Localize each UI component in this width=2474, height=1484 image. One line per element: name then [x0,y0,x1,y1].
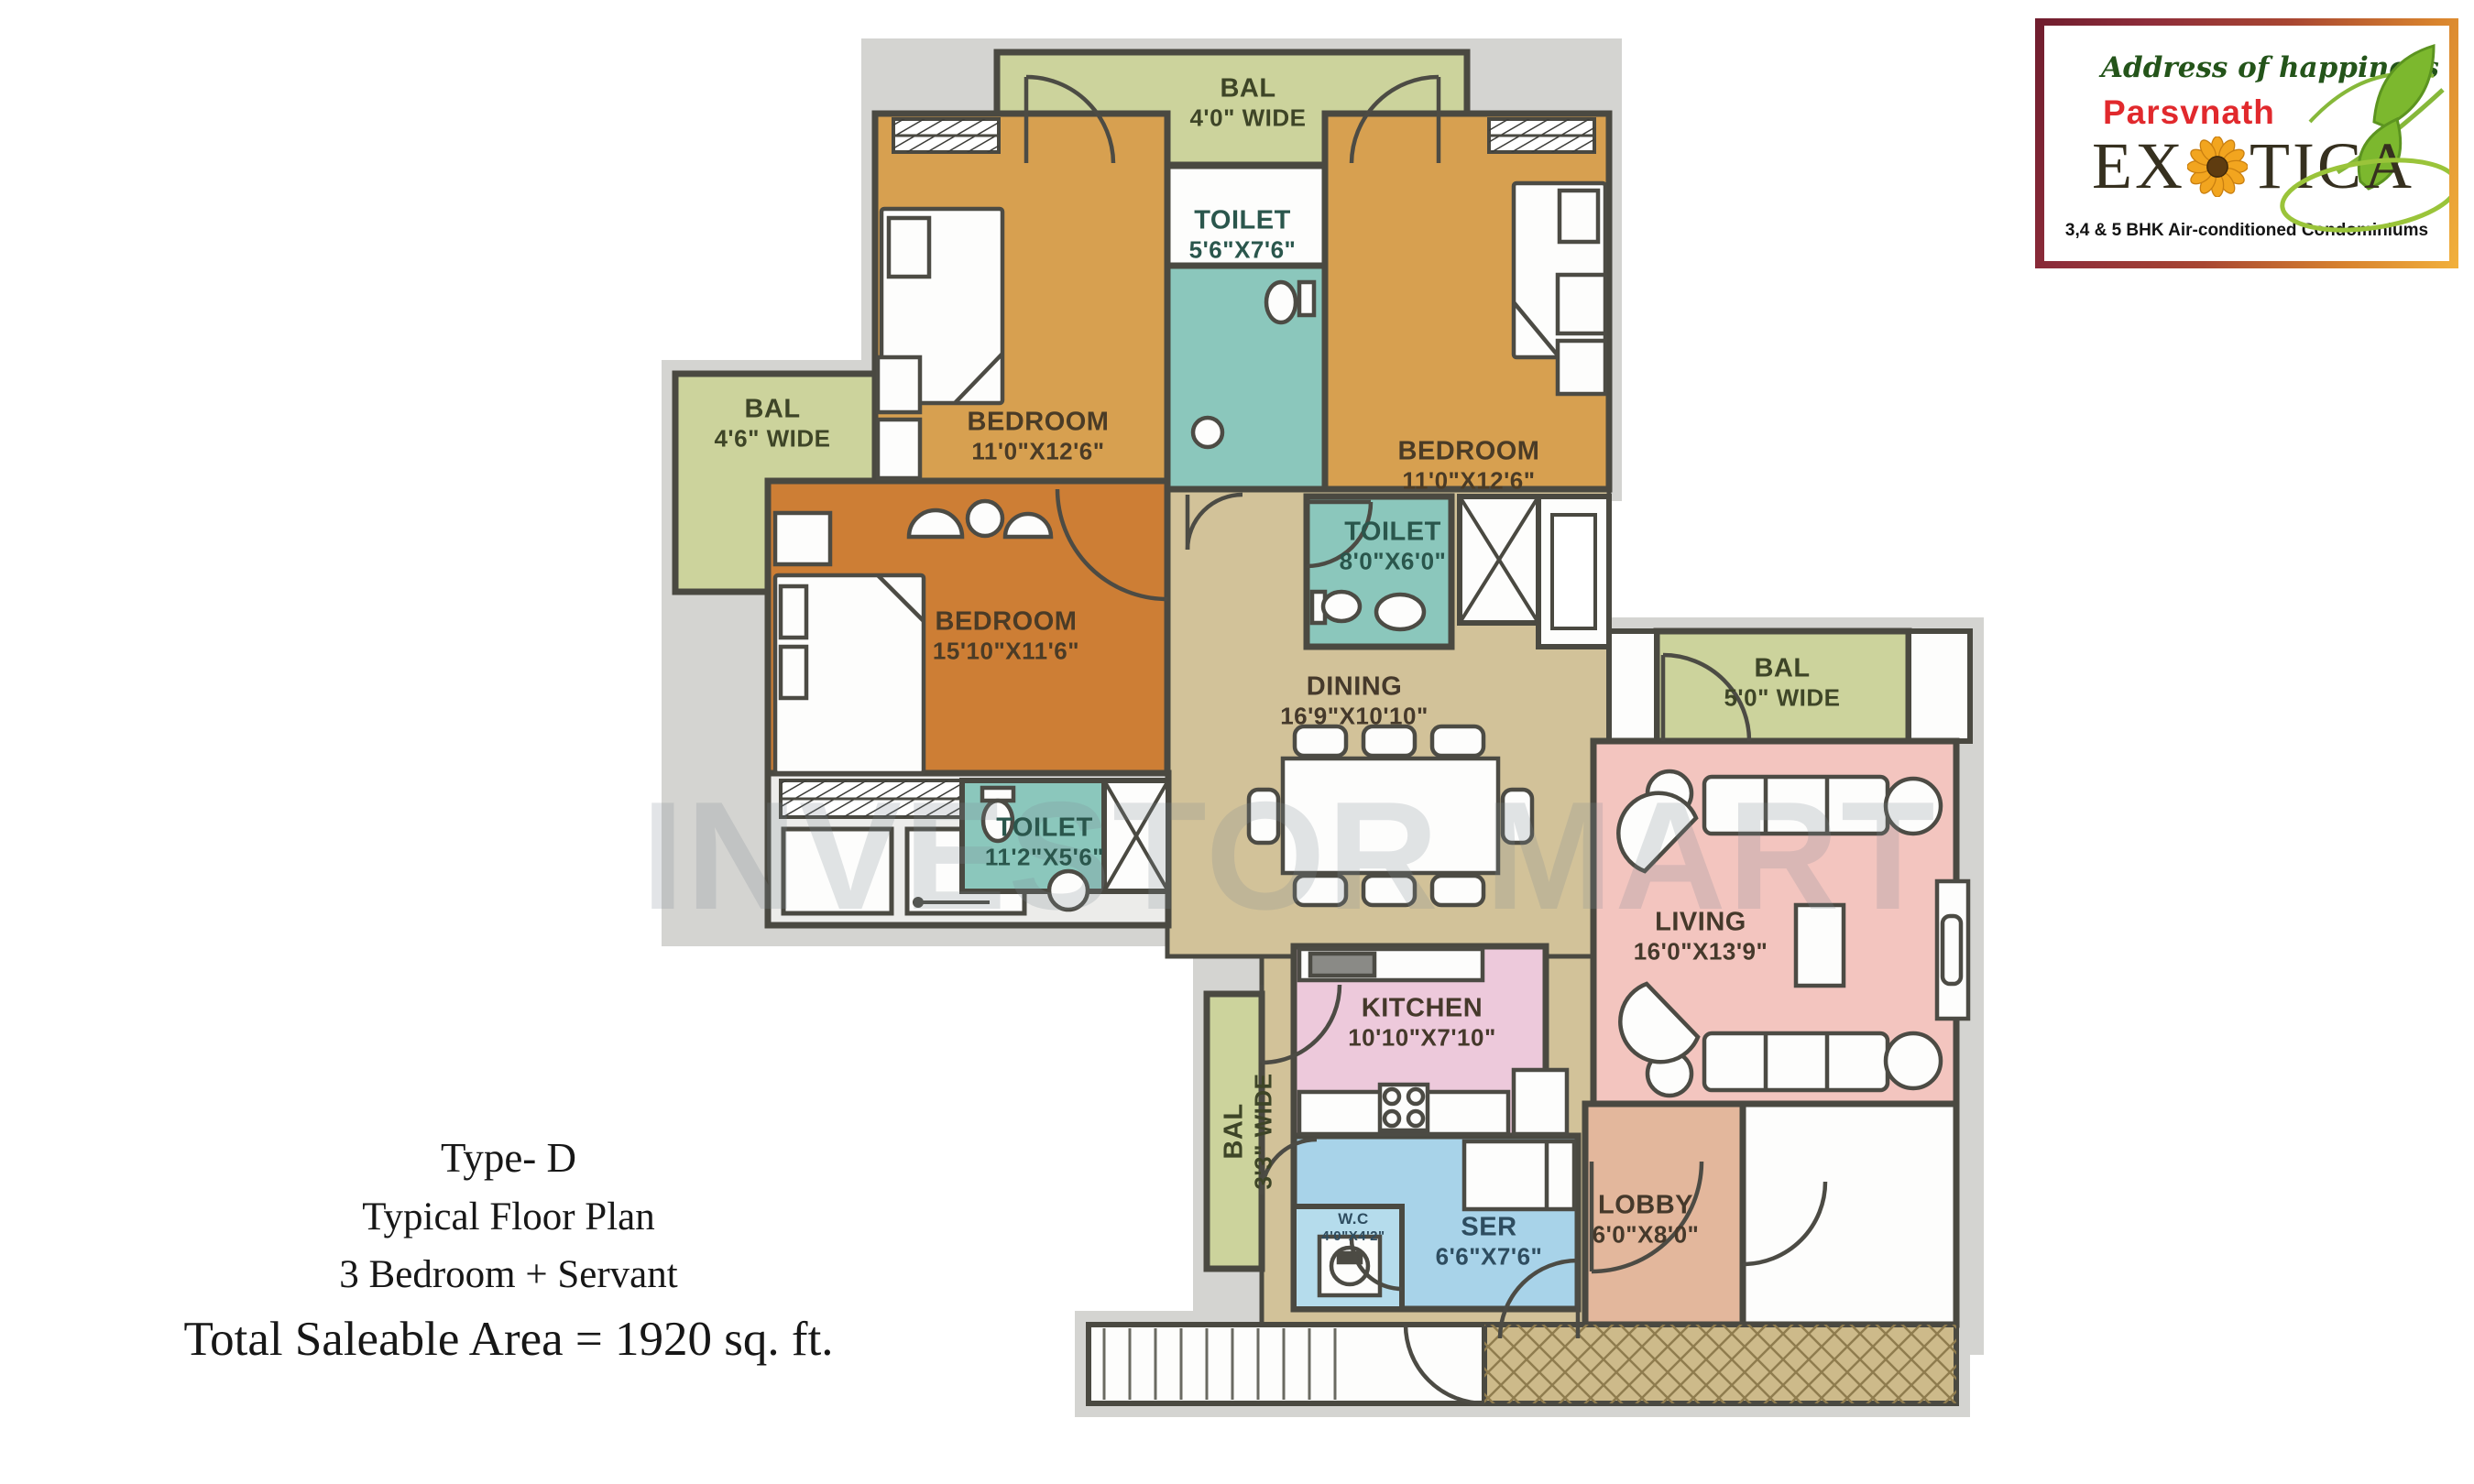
room-label-bedroom-top-right: BEDROOM 11'0"X12'6" [1398,436,1540,496]
room-label-toilet-mid: TOILET 8'0"X6'0" [1340,517,1447,576]
room-label-balcony-right: BAL 5'0" WIDE [1724,653,1840,713]
logo-subtitle: 3,4 & 5 BHK Air-conditioned Condominiums [2044,221,2449,241]
room-label-bedroom-master: BEDROOM 15'10"X11'6" [933,606,1079,666]
logo-name-right: TICA [2250,128,2414,204]
title-block: Type- D Typical Floor Plan 3 Bedroom + S… [128,1134,889,1367]
room-label-bedroom-top-left: BEDROOM 11'0"X12'6" [968,407,1110,466]
room-label-kitchen: KITCHEN 10'10"X7'10" [1348,993,1496,1053]
floor-plan-page: INVESTOR MART BAL 4'0" WIDE TOILET 5'6"X… [0,0,2474,1484]
room-label-lobby: LOBBY 6'0"X8'0" [1593,1190,1700,1249]
stairs [1089,1325,1484,1403]
room-label-balcony-bottom: BAL 3'3" WIDE [1219,1073,1278,1189]
logo-name-left: EX [2092,128,2185,204]
room-label-servant: SER 6'6"X7'6" [1436,1212,1543,1271]
plan-subtitle: Typical Floor Plan [128,1195,889,1239]
plan-type: Type- D [128,1134,889,1182]
brand-logo: Address of happiness Parsvnath EX [2035,18,2458,268]
room-label-balcony-top: BAL 4'0" WIDE [1189,73,1306,133]
room-label-balcony-left: BAL 4'6" WIDE [714,394,830,453]
room-label-living: LIVING 16'0"X13'9" [1634,907,1768,966]
saleable-area: Total Saleable Area = 1920 sq. ft. [128,1312,889,1367]
sunflower-icon [2187,136,2248,197]
room-label-toilet-top: TOILET 5'6"X7'6" [1189,205,1297,265]
room-label-wc: W.C 4'0"X4'2" [1321,1210,1385,1245]
room-label-dining: DINING 16'9"X10'10" [1280,671,1429,731]
plan-config: 3 Bedroom + Servant [128,1252,889,1297]
logo-name: EX [2092,128,2414,204]
logo-brand: Parsvnath [2103,93,2275,132]
room-label-toilet-lower: TOILET 11'2"X5'6" [985,813,1104,872]
entry-hall [1743,1104,1956,1325]
